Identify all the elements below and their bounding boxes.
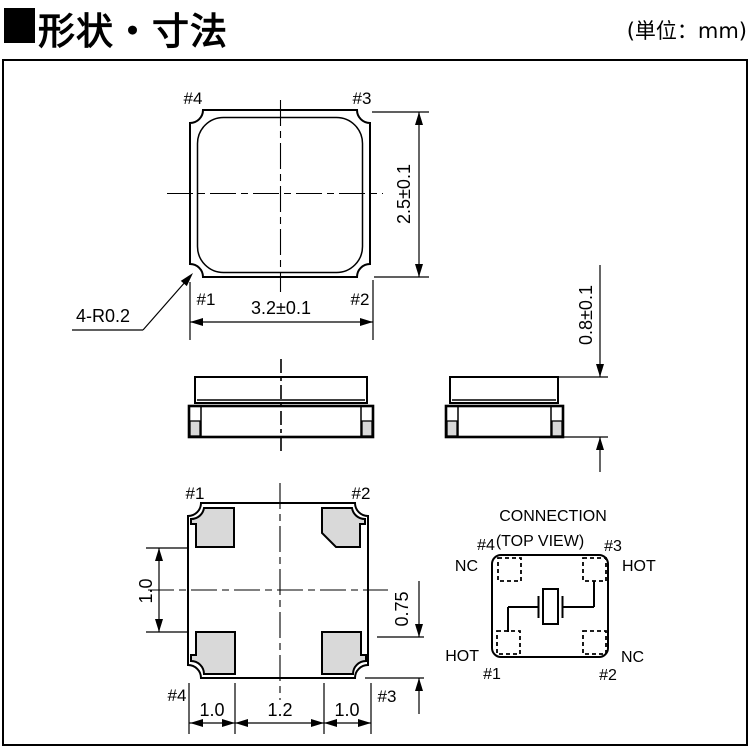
conn-pad-2: [583, 631, 606, 654]
crystal-symbol-icon: [508, 581, 594, 632]
side-view-front: [189, 359, 373, 452]
terminal-right: [362, 421, 372, 436]
conn-pin-3: #3: [604, 538, 622, 555]
pad-label-2: #2: [352, 484, 371, 503]
bottom-view: #1 #2 #4 #3: [148, 483, 396, 706]
dim-center-span-label: 1.2: [267, 700, 292, 720]
base-side: [446, 406, 563, 437]
dim-pad-height-label: 0.75: [392, 591, 412, 626]
conn-pad-3: [583, 558, 606, 581]
dim-height-label: 2.5±0.1: [394, 164, 414, 224]
conn-signal-4: NC: [455, 558, 478, 575]
pin-label-3: #3: [353, 89, 372, 108]
terminal-left: [190, 421, 200, 436]
datasheet-dimension-page: 形状・寸法 (単位：mm) #4 #3 #1 #2 2.5±0.1: [0, 0, 750, 751]
conn-pin-4: #4: [477, 537, 495, 554]
conn-signal-2: NC: [621, 649, 644, 666]
dim-width-label: 3.2±0.1: [251, 298, 311, 318]
dim-package-height: 2.5±0.1: [372, 112, 429, 277]
drawing-frame: [3, 60, 747, 745]
pin-label-2: #2: [351, 290, 370, 309]
pad-4: [191, 632, 235, 674]
pin-label-1: #1: [197, 290, 216, 309]
dimension-drawing: #4 #3 #1 #2 2.5±0.1 3.2±0.1: [0, 0, 750, 751]
dim-pad-width-left-label: 1.0: [199, 700, 224, 720]
dim-gap-vertical-label: 1.0: [136, 578, 156, 603]
dim-package-width: 3.2±0.1: [190, 280, 373, 340]
corner-radius-label: 4-R0.2: [76, 306, 130, 326]
connection-diagram: CONNECTION (TOP VIEW) #4 #3 #1 #2 NC HOT: [445, 508, 656, 684]
pad-label-3: #3: [378, 687, 397, 706]
pin-label-4: #4: [184, 89, 203, 108]
pad-1: [191, 508, 234, 547]
conn-signal-1: HOT: [445, 648, 479, 665]
connection-subtitle: (TOP VIEW): [496, 533, 584, 550]
side-view-right: [446, 377, 563, 437]
lid-side: [450, 377, 558, 403]
conn-signal-3: HOT: [622, 558, 656, 575]
dim-thickness-label: 0.8±0.1: [576, 285, 596, 345]
conn-pin-1: #1: [483, 666, 501, 683]
pad-2: [322, 508, 365, 547]
dim-pad-width-right-label: 1.0: [334, 700, 359, 720]
terminal-side-left: [447, 421, 457, 436]
terminal-side-right: [552, 421, 562, 436]
conn-pad-4: [498, 558, 521, 581]
corner-radius-callout: 4-R0.2: [72, 273, 193, 330]
connection-title: CONNECTION: [499, 508, 607, 525]
conn-pin-2: #2: [599, 667, 617, 684]
pad-label-4: #4: [168, 686, 187, 705]
dim-package-thickness: 0.8±0.1: [558, 265, 608, 472]
top-view: #4 #3 #1 #2: [167, 89, 383, 309]
pad-label-1: #1: [186, 484, 205, 503]
conn-pad-1: [497, 631, 520, 654]
